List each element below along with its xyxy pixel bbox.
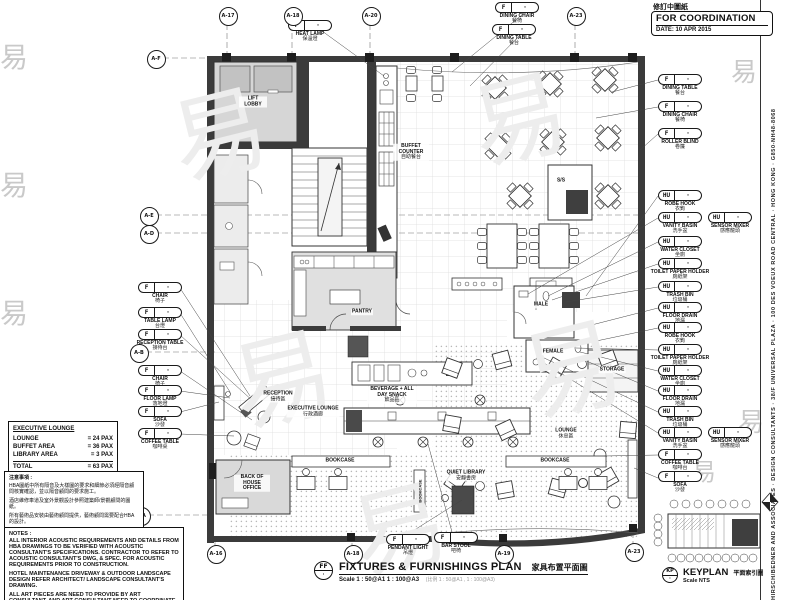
notes-title: NOTES : (9, 531, 179, 537)
callout-floor-drain-2: HU· FLOOR DRAIN 地漏 (648, 385, 712, 407)
callout-coffee-table-right: F· COFFEE TABLE 咖啡台 (648, 449, 712, 471)
drawing-scale: Scale 1 : 50@A1 1 : 100@A3 (339, 577, 419, 583)
chinese-notes-box: 注意事項 : HBA圖紙中所有隔音及大樣圖的要求和細節必須經隔音顧問核實確認，並… (4, 471, 144, 532)
room-label-pantry: PANTRY (351, 309, 373, 315)
callout-trash-bin-2: HU· TRASH BIN 垃圾桶 (648, 406, 712, 428)
service-shaft (548, 165, 592, 220)
room-label-male: MALE (533, 302, 549, 308)
chinese-note: HBA圖紙中所有隔音及大樣圖的要求和細節必須經隔音顧問核實確認，並以隔音顧問的要… (9, 483, 139, 495)
chinese-note: 所有藝術品安裝由藝術顧問提供，藝術顧問需要配合HBA的設計。 (9, 513, 139, 525)
occupancy-table: EXECUTIVE LOUNGE LOUNGE= 24 PAX BUFFET A… (8, 421, 118, 474)
grid-bubble-left-1: A-F (147, 50, 166, 69)
drawing-tag-circle: FF · (314, 561, 333, 580)
keyplan-scale: Scale NTS (683, 578, 763, 584)
callout-water-closet-2: HU· WATER CLOSET 坐廁 (648, 365, 712, 387)
note-paragraph: ALL INTERIOR ACOUSTIC REQUIREMENTS AND D… (9, 538, 179, 568)
room-label-boh-office: BACK OF HOUSE OFFICE (234, 475, 270, 492)
callout-floor-drain-1: HU· FLOOR DRAIN 地漏 (648, 302, 712, 324)
occupancy-total-row: TOTAL= 63 PAX (13, 461, 113, 471)
occupancy-row: LIBRARY AREA= 3 PAX (13, 451, 113, 459)
callout-robe-hook-1: HU· ROBE HOOK 衣鉤 (648, 190, 712, 212)
callout-water-closet-1: HU· WATER CLOSET 坐廁 (648, 236, 712, 258)
grid-bubble-top-4: A-23 (567, 7, 586, 26)
room-label-bookcase-a: BOOKCASE (325, 458, 356, 464)
grid-bubble-top-3: A-20 (362, 7, 381, 26)
room-label-quiet-library: QUIET LIBRARY 安靜書房 (446, 471, 487, 482)
chinese-notes-title: 注意事項 : (9, 475, 139, 481)
callout-trash-bin-1: HU· TRASH BIN 垃圾桶 (648, 281, 712, 303)
firm-border-text: HIRSCH/BEDNER AND ASSOCIATES · DESIGN CO… (766, 0, 782, 600)
drawing-scale-note: (比例 1 : 50@A1 , 1 : 100@A3) (426, 577, 495, 583)
callout-bar-stool: F· BAR STOOL 吧椅 (424, 532, 488, 554)
callout-toilet-paper-holder-2: HU· TOILET PAPER HOLDER 廁紙架 (648, 344, 712, 366)
coordination-date: DATE: 10 APR 2015 (656, 25, 768, 33)
grid-bubble-bottom-1: A-16 (207, 545, 226, 564)
room-label-ss: S/S (556, 178, 566, 184)
buffet-counter (376, 66, 397, 278)
chinese-note: 酒店維修車道及室外景觀設計參照建築師/景觀顧問的圖紙。 (9, 498, 139, 510)
room-label-executive-lounge: EXECUTIVE LOUNGE 行政酒廊 (286, 407, 339, 418)
occupancy-title: EXECUTIVE LOUNGE (13, 425, 113, 433)
drawing-title: FIXTURES & FURNISHINGS PLAN (339, 561, 522, 573)
callout-table-lamp: F· TABLE LAMP 台燈 (128, 307, 192, 329)
coordination-status: FOR COORDINATION (656, 13, 768, 24)
keyplan-tag-circle: KP · (662, 567, 678, 583)
callout-chair-1: F· CHAIR 椅子 (128, 282, 192, 304)
room-label-lounge: LOUNGE 休息區 (554, 429, 577, 440)
coordination-stamp: FOR COORDINATION DATE: 10 APR 2015 (651, 11, 773, 36)
room-label-beverage: BEVERAGE + ALL DAY SNACK 飲品區 (367, 387, 417, 404)
callout-sensor-mixer-1: HU· SENSOR MIXER 感應龍頭 (698, 212, 762, 234)
callout-dining-table-top: F· DINING TABLE 餐台 (482, 24, 546, 46)
grid-bubble-top-1: A-17 (219, 7, 238, 26)
callout-coffee-table-left: F· COFFEE TABLE 咖啡桌 (128, 428, 192, 450)
grid-bubble-top-2: A-18 (284, 7, 303, 26)
room-label-female: FEMALE (542, 349, 565, 355)
notes-box: NOTES : ALL INTERIOR ACOUSTIC REQUIREMEN… (4, 527, 184, 600)
grid-bubble-left-3: A-D (140, 225, 159, 244)
grid-bubble-left-2: A-E (140, 207, 159, 226)
callout-robe-hook-2: HU· ROBE HOOK 衣鉤 (648, 322, 712, 344)
note-paragraph: HOTEL MAINTENANCE DRIVEWAY & OUTDOOR LAN… (9, 571, 179, 589)
keyplan-title-cn: 平面索引圖 (733, 568, 763, 577)
grid-bubble-left-4: A-B (130, 344, 149, 363)
keyplan-title: KEYPLAN (683, 567, 728, 578)
room-label-bookcase-vertical: BOOKCASE (416, 479, 424, 502)
room-label-bookcase-b: BOOKCASE (540, 458, 571, 464)
callout-dining-table: F· DINING TABLE 餐台 (648, 74, 712, 96)
room-label-storage: STORAGE (599, 367, 626, 373)
callout-sensor-mixer-2: HU· SENSOR MIXER 感應龍頭 (698, 427, 762, 449)
occupancy-row: BUFFET AREA= 36 PAX (13, 443, 113, 451)
room-label-buffet-counter: BUFFET COUNTER 自助餐台 (393, 144, 429, 161)
keyplan-title-block: KP · KEYPLAN 平面索引圖 Scale NTS (662, 567, 763, 584)
grid-bubble-bottom-4: A-23 (625, 543, 644, 562)
drawing-title-block: FF · FIXTURES & FURNISHINGS PLAN 家具布置平面圖… (314, 561, 588, 583)
callout-chair-2: F· CHAIR 椅子 (128, 365, 192, 387)
callout-dining-chair-top: F· DINING CHAIR 餐椅 (485, 2, 549, 24)
service-rooms (214, 155, 262, 304)
drawing-sheet: 易 易 易 易 易 易 易 易 易 易 易 LIFT LOBBY BUFFET … (0, 0, 785, 600)
callout-floor-lamp: F· FLOOR LAMP 落地燈 (128, 385, 192, 407)
occupancy-row: LOUNGE= 24 PAX (13, 435, 113, 443)
callout-sofa-right: F· SOFA 沙發 (648, 471, 712, 493)
note-paragraph: ALL ART PIECES ARE NEED TO PROVIDE BY AR… (9, 592, 179, 600)
room-label-reception: RECEPTION 接待區 (262, 392, 293, 403)
sheet-border-line (760, 0, 761, 600)
room-label-lift-lobby: LIFT LOBBY (239, 97, 267, 108)
callout-dining-chair: F· DINING CHAIR 餐椅 (648, 101, 712, 123)
callout-sofa-left: F· SOFA 沙發 (128, 406, 192, 428)
drawing-title-cn: 家具布置平面圖 (532, 562, 588, 573)
callout-toilet-paper-holder-1: HU· TOILET PAPER HOLDER 廁紙架 (648, 258, 712, 280)
callout-roller-blind: F· ROLLER BLIND 卷簾 (648, 128, 712, 150)
